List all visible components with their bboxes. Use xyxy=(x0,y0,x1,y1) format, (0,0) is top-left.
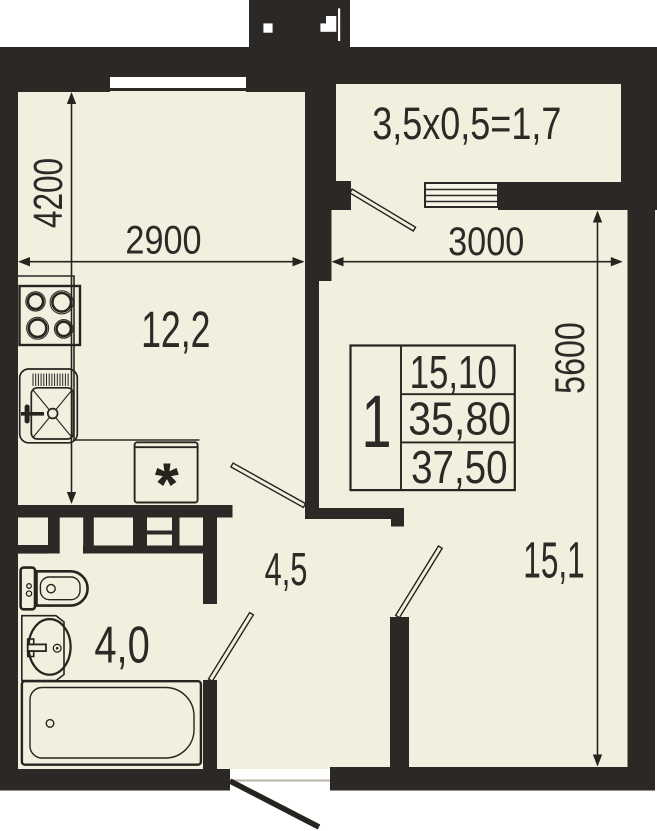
svg-text:4200: 4200 xyxy=(25,158,71,228)
svg-text:12,2: 12,2 xyxy=(141,302,210,359)
svg-text:5600: 5600 xyxy=(546,322,593,394)
svg-text:3,5x0,5=1,7: 3,5x0,5=1,7 xyxy=(372,98,561,149)
svg-text:15,1: 15,1 xyxy=(523,532,584,589)
svg-text:37,50: 37,50 xyxy=(411,442,507,493)
svg-text:4,0: 4,0 xyxy=(94,615,150,673)
svg-text:2900: 2900 xyxy=(125,217,201,262)
svg-text:35,80: 35,80 xyxy=(408,395,511,446)
svg-text:15,10: 15,10 xyxy=(410,346,497,398)
svg-text:3000: 3000 xyxy=(448,218,524,263)
svg-text:4,5: 4,5 xyxy=(265,545,308,596)
svg-text:1: 1 xyxy=(361,380,391,463)
